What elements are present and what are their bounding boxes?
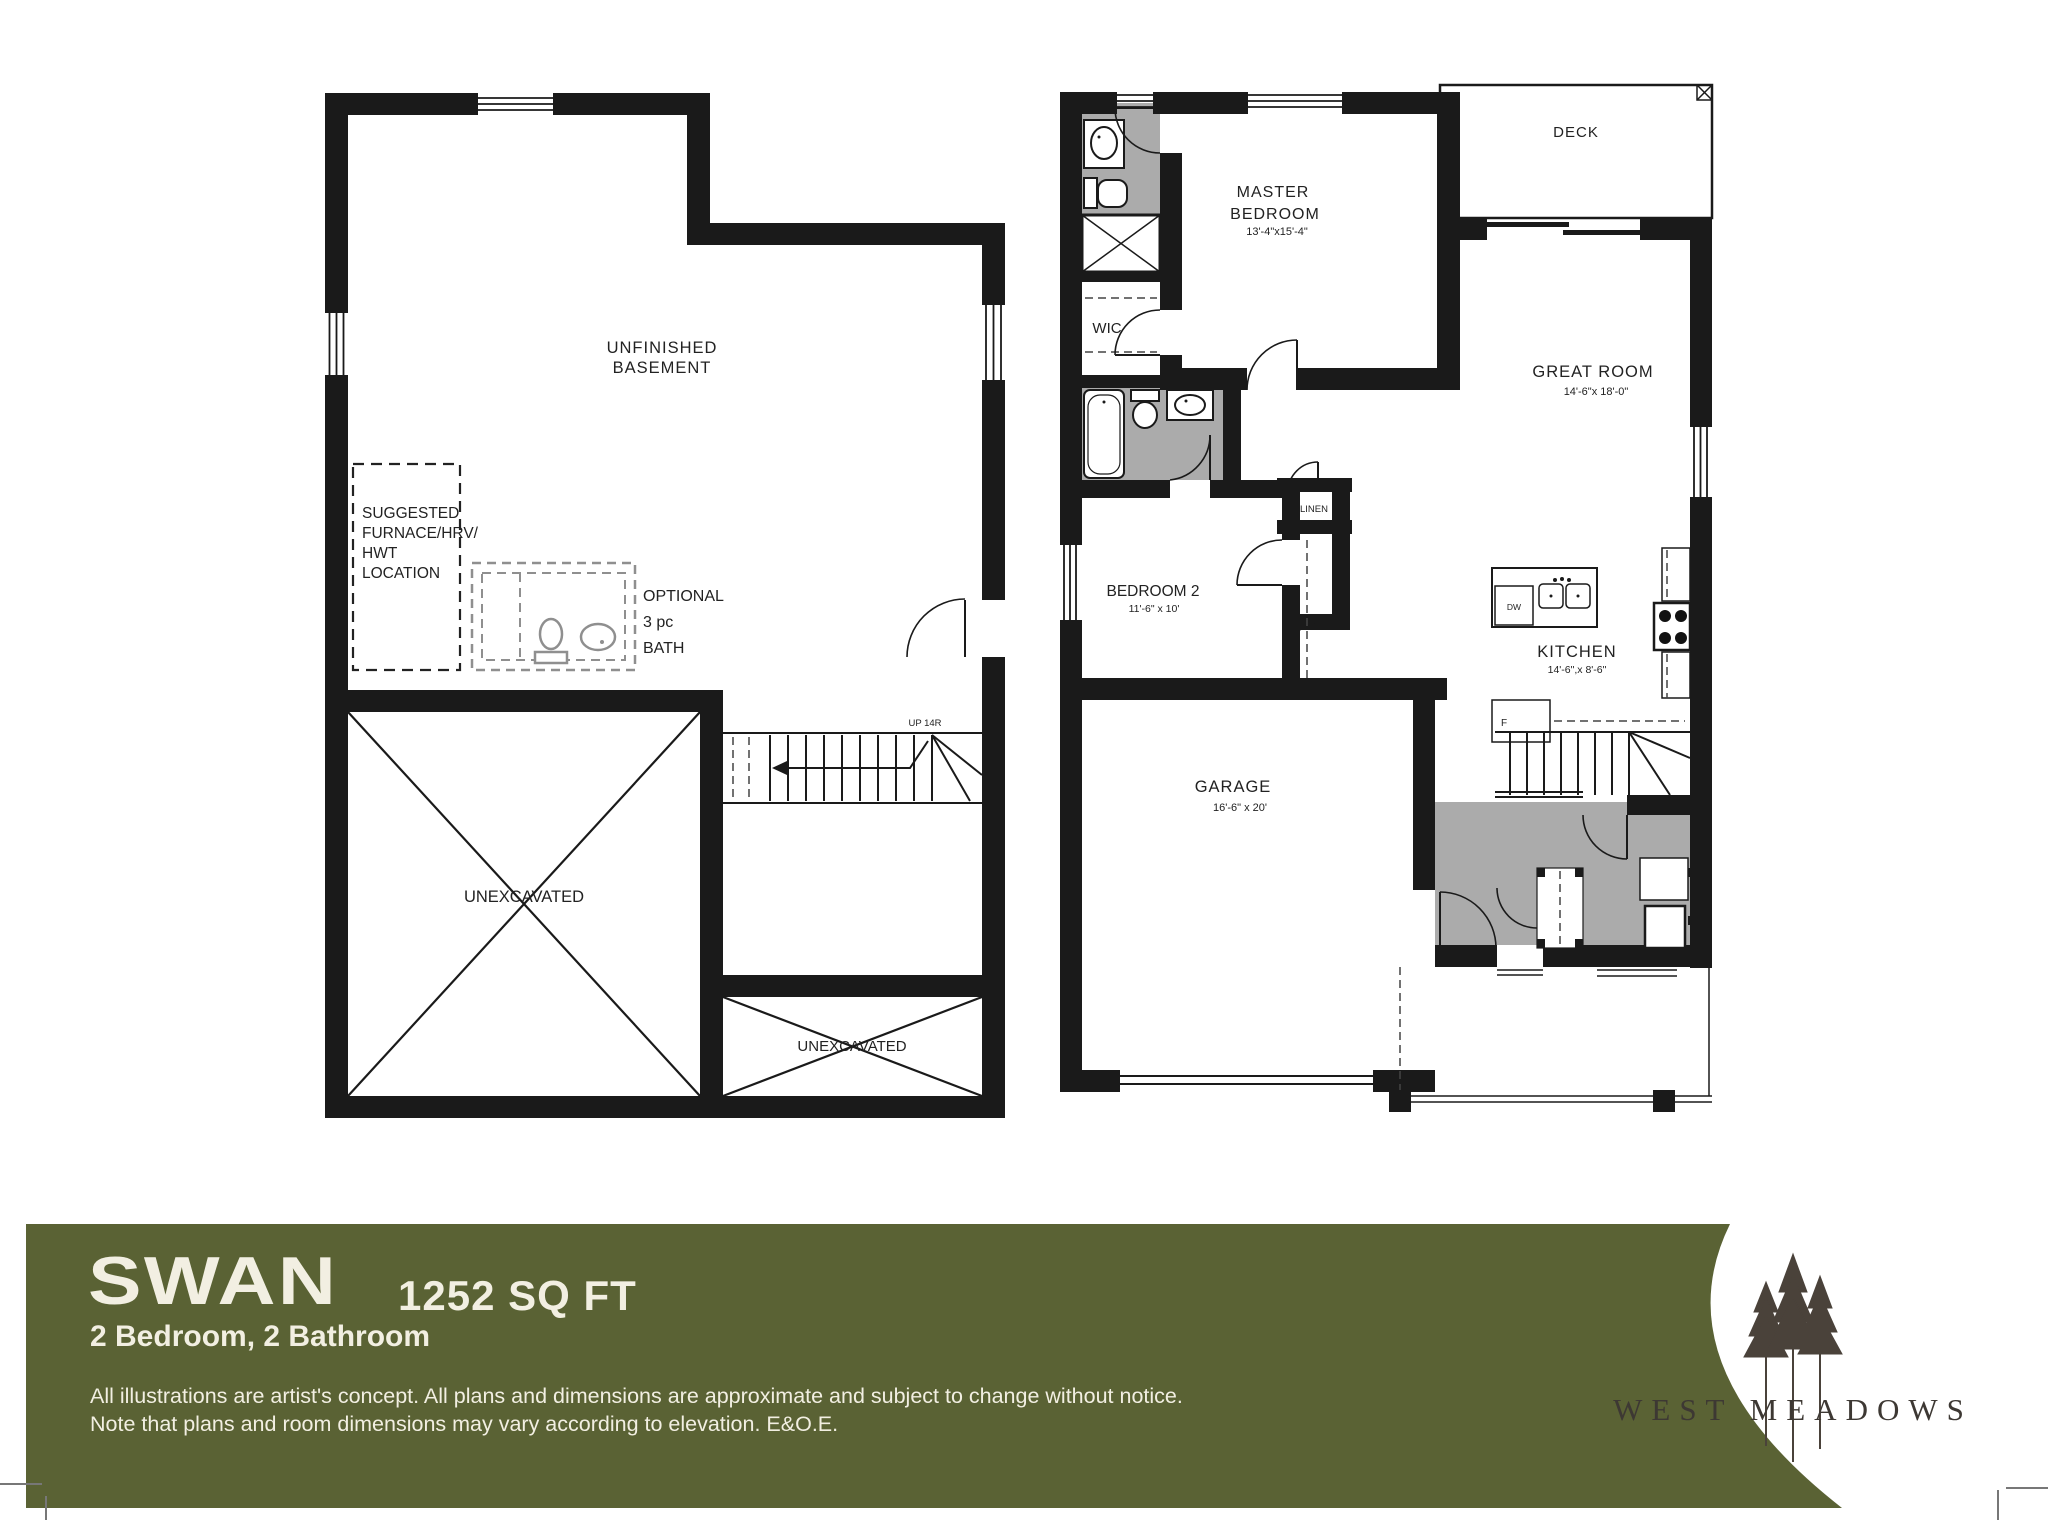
basement-floor-plan: UNFINISHED BASEMENT SUGGESTED FURNACE/HR…	[325, 85, 1005, 1125]
model-name: SWAN	[88, 1242, 338, 1320]
deck-outline	[1440, 85, 1712, 218]
basement-window-left	[330, 310, 344, 378]
fridge-label: F	[1501, 718, 1507, 729]
bedroom2-dims: 11'-6" x 10'	[1129, 603, 1180, 615]
basement-window-right	[986, 302, 1001, 383]
ensuite-shower	[1082, 215, 1160, 272]
deck-label: DECK	[1553, 124, 1599, 141]
main-bath-sink	[1167, 390, 1213, 420]
basement-stairs	[723, 733, 982, 803]
optional-bath-label-line2: 3 pc	[643, 614, 673, 631]
stove	[1654, 603, 1690, 650]
disclaimer-line-2: Note that plans and room dimensions may …	[90, 1412, 838, 1437]
basement-window-top	[475, 98, 556, 110]
bedroom2-label: BEDROOM 2	[1106, 583, 1199, 600]
master-bedroom-label-line1: MASTER	[1237, 184, 1310, 201]
bedroom2-door	[1237, 540, 1282, 585]
basement-stair-door	[907, 599, 965, 657]
main-bath-tub	[1084, 390, 1124, 478]
optional-bath-layout	[472, 563, 635, 670]
basement-walls	[325, 93, 1005, 1118]
ensuite-sink	[1084, 120, 1124, 168]
garage-dims: 16'-6" x 20'	[1213, 802, 1267, 814]
front-porch	[1389, 967, 1712, 1112]
master-bedroom-dims: 13'-4"x15'-4"	[1246, 226, 1308, 238]
dishwasher-label: DW	[1507, 602, 1521, 612]
brochure-page: UNFINISHED BASEMENT SUGGESTED FURNACE/HR…	[0, 0, 2048, 1520]
logo-curve-background	[1711, 1224, 2048, 1508]
window-master-top	[1245, 95, 1345, 107]
brand-logo-panel: WEST MEADOWS	[1580, 1224, 2048, 1508]
deck-sliding-door	[1487, 222, 1642, 235]
window-bedroom2-left	[1064, 542, 1076, 623]
master-bedroom-label-line2: BEDROOM	[1230, 206, 1320, 223]
main-bath-toilet	[1131, 390, 1159, 428]
master-bedroom-door	[1247, 340, 1297, 390]
stair-label: UP 14R	[908, 718, 941, 729]
crop-mark-bottom-right-h	[2006, 1487, 2048, 1489]
square-footage: 1252 SQ FT	[398, 1272, 637, 1320]
garage-door	[1120, 1076, 1373, 1084]
disclaimer-line-1: All illustrations are artist's concept. …	[90, 1384, 1183, 1409]
wic-label: WIC	[1092, 320, 1121, 337]
garage-label: GARAGE	[1195, 778, 1272, 796]
window-greatroom-right	[1694, 424, 1707, 500]
main-floor-plan: DECK MASTER BEDROOM 13'-4"x15'-4" WIC GR…	[1055, 80, 1715, 1125]
optional-bath-label-line1: OPTIONAL	[643, 588, 724, 605]
crop-mark-bottom-left-v	[45, 1496, 47, 1520]
furnace-label-line3: HWT	[362, 545, 398, 562]
unexcavated-main-label: UNEXCAVATED	[464, 888, 584, 906]
basement-title-line1: UNFINISHED	[607, 339, 718, 357]
furnace-label-line1: SUGGESTED	[362, 505, 459, 522]
crop-mark-bottom-right-v	[1997, 1490, 1999, 1520]
entry-closet	[1537, 868, 1583, 948]
great-room-dims: 14'-6"x 18'-0"	[1564, 386, 1629, 398]
bed-bath-configuration: 2 Bedroom, 2 Bathroom	[90, 1320, 430, 1354]
unexcavated-secondary-label: UNEXCAVATED	[797, 1038, 906, 1055]
basement-title-line2: BASEMENT	[613, 359, 712, 377]
optional-toilet	[535, 619, 567, 663]
great-room-label: GREAT ROOM	[1532, 363, 1653, 381]
optional-bath-label-line3: BATH	[643, 640, 684, 657]
furnace-label-line2: FURNACE/HRV/	[362, 525, 479, 542]
linen-label: LINEN	[1300, 504, 1328, 515]
stair-direction-arrow	[772, 761, 787, 775]
optional-sink	[581, 624, 615, 650]
kitchen-island	[1492, 568, 1597, 627]
crop-mark-bottom-left-h	[0, 1483, 42, 1485]
kitchen-label: KITCHEN	[1537, 643, 1616, 661]
brand-name: WEST MEADOWS	[1613, 1392, 1973, 1427]
banner: SWAN 1252 SQ FT 2 Bedroom, 2 Bathroom Al…	[26, 1224, 2048, 1508]
furnace-label-line4: LOCATION	[362, 565, 440, 582]
ensuite-toilet	[1084, 178, 1127, 208]
kitchen-dims: 14'-6",x 8'-6"	[1548, 664, 1607, 676]
